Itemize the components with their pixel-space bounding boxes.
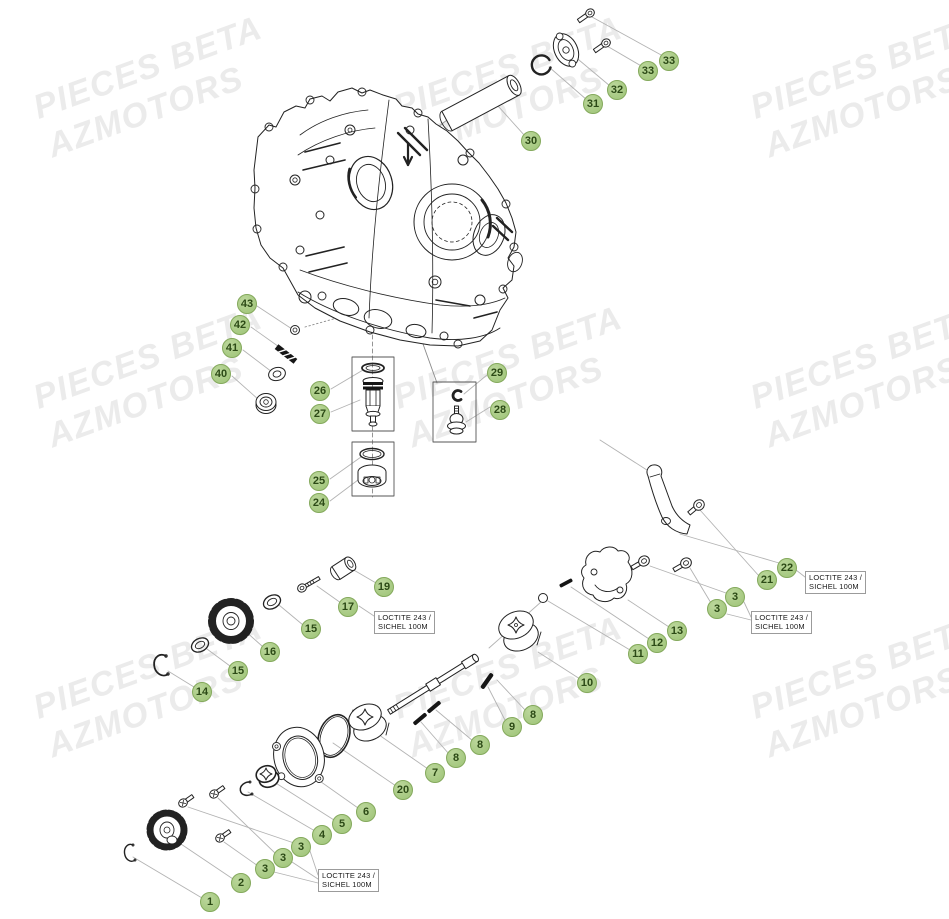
part-7-rotor-outer (345, 699, 391, 746)
callout-15[interactable]: 15 (228, 661, 248, 681)
callout-29[interactable]: 29 (487, 363, 507, 383)
part-13-cover (582, 547, 632, 602)
callout-16[interactable]: 16 (260, 642, 280, 662)
part-rotor-outer-large (494, 606, 543, 657)
callout-28[interactable]: 28 (490, 400, 510, 420)
callout-15[interactable]: 15 (301, 619, 321, 639)
part-19-bushing (328, 555, 358, 582)
callout-4[interactable]: 4 (312, 825, 332, 845)
part-3-screw (177, 793, 195, 809)
part-33-bolt (592, 37, 612, 54)
callout-42[interactable]: 42 (230, 315, 250, 335)
part-24-cap (358, 465, 386, 487)
part-22-lever (647, 465, 690, 534)
callout-19[interactable]: 19 (374, 577, 394, 597)
callout-24[interactable]: 24 (309, 493, 329, 513)
note-loctite: LOCTITE 243 /SICHEL 100M (751, 611, 812, 634)
callout-8[interactable]: 8 (470, 735, 490, 755)
callout-27[interactable]: 27 (310, 404, 330, 424)
callout-3[interactable]: 3 (291, 837, 311, 857)
part-8-pin (427, 700, 442, 713)
part-31-oring (532, 55, 551, 74)
part-15-ring (189, 635, 211, 655)
parts-diagram-page: PIECES BETAAZMOTORSPIECES BETAAZMOTORSPI… (0, 0, 949, 919)
exploded-parts-drawing (0, 0, 949, 919)
callout-10[interactable]: 10 (577, 673, 597, 693)
callout-25[interactable]: 25 (309, 471, 329, 491)
callout-40[interactable]: 40 (211, 364, 231, 384)
note-loctite: LOCTITE 243 /SICHEL 100M (374, 611, 435, 634)
part-12-pin (559, 578, 573, 588)
part-16-gear (212, 602, 250, 640)
callout-20[interactable]: 20 (393, 780, 413, 800)
part-2-impeller-gear (150, 813, 184, 847)
part-30-pipe (437, 73, 524, 133)
part-28-valve (448, 406, 466, 434)
callout-17[interactable]: 17 (338, 597, 358, 617)
callout-6[interactable]: 6 (356, 802, 376, 822)
callout-12[interactable]: 12 (647, 633, 667, 653)
part-15-ring (261, 592, 283, 612)
part-41-washer (267, 366, 287, 383)
part-8-pin (413, 712, 428, 725)
callout-11[interactable]: 11 (628, 644, 648, 664)
callout-14[interactable]: 14 (192, 682, 212, 702)
engine-case-drawing (251, 88, 525, 348)
callout-30[interactable]: 30 (521, 131, 541, 151)
part-11-ball (539, 594, 548, 603)
part-27-valve (363, 378, 383, 427)
callout-8[interactable]: 8 (523, 705, 543, 725)
callout-3[interactable]: 3 (255, 859, 275, 879)
callout-5[interactable]: 5 (332, 814, 352, 834)
callout-3[interactable]: 3 (707, 599, 727, 619)
note-loctite: LOCTITE 243 /SICHEL 100M (805, 571, 866, 594)
part-32-cover-plate (548, 28, 584, 71)
part-43-ring (291, 326, 300, 335)
part-1-clip (124, 844, 136, 861)
callout-2[interactable]: 2 (231, 873, 251, 893)
callout-41[interactable]: 41 (222, 338, 242, 358)
part-40-plug (256, 394, 276, 414)
part-9-pin (480, 672, 494, 689)
part-29-circlip (453, 391, 461, 401)
note-loctite: LOCTITE 243 /SICHEL 100M (318, 869, 379, 892)
part-42-spring (275, 344, 298, 364)
part-3-screw (671, 556, 693, 574)
callout-3[interactable]: 3 (725, 587, 745, 607)
callout-3[interactable]: 3 (273, 848, 293, 868)
part-4-circlip (240, 781, 253, 795)
part-33-bolt (576, 7, 596, 24)
callout-43[interactable]: 43 (237, 294, 257, 314)
callout-8[interactable]: 8 (446, 748, 466, 768)
callout-13[interactable]: 13 (667, 621, 687, 641)
callout-7[interactable]: 7 (425, 763, 445, 783)
callout-22[interactable]: 22 (777, 558, 797, 578)
callout-33[interactable]: 33 (659, 51, 679, 71)
part-17-bolt (296, 575, 321, 594)
part-3-screw (214, 828, 232, 844)
part-26-oring (362, 364, 384, 373)
callout-26[interactable]: 26 (310, 381, 330, 401)
callout-1[interactable]: 1 (200, 892, 220, 912)
part-14-circlip (154, 655, 169, 676)
callout-33[interactable]: 33 (638, 61, 658, 81)
callout-32[interactable]: 32 (607, 80, 627, 100)
callout-21[interactable]: 21 (757, 570, 777, 590)
callout-31[interactable]: 31 (583, 94, 603, 114)
part-25-ring (360, 449, 384, 460)
part-3-screw (629, 554, 651, 572)
part-3-screw (208, 784, 226, 800)
callout-9[interactable]: 9 (502, 717, 522, 737)
